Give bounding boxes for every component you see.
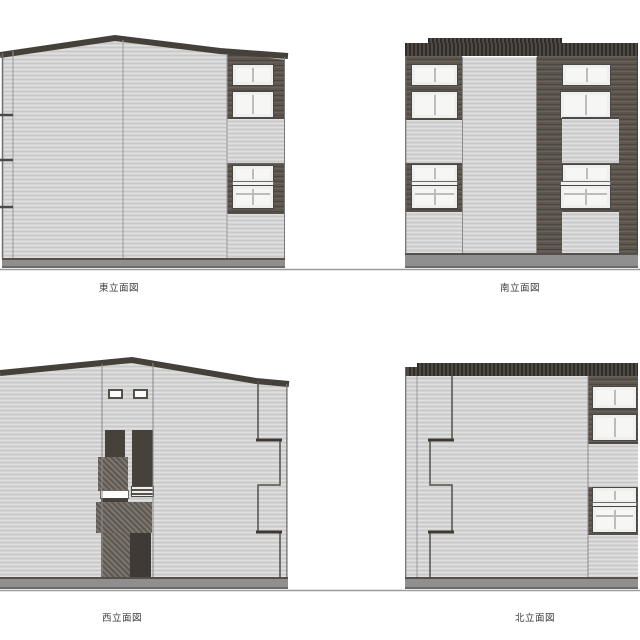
north-parapet-band — [405, 363, 638, 376]
window — [593, 507, 636, 532]
window — [593, 387, 636, 408]
north-elevation: 北立面図 — [0, 0, 640, 640]
elevation-label-north: 北立面図 — [515, 610, 555, 624]
north-foundation-band — [405, 577, 638, 589]
north-lower-wall-panel — [588, 533, 638, 577]
window — [593, 415, 636, 440]
north-parapet-step — [405, 363, 417, 367]
north-balcony-panel — [588, 442, 638, 487]
elevation-drawing-sheet: 東立面図 南立面図 — [0, 0, 640, 640]
window — [593, 488, 636, 503]
